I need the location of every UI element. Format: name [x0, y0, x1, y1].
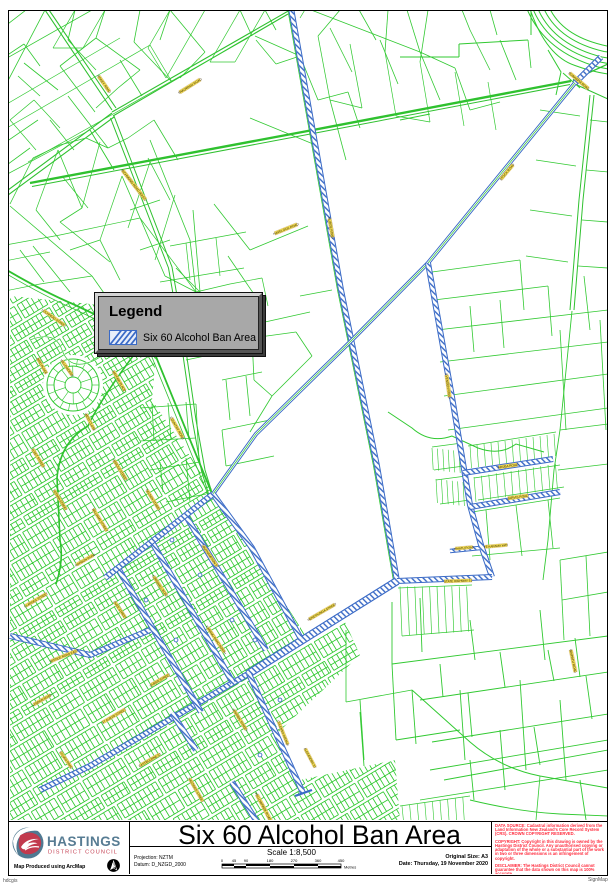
svg-text:Map Produced using ArcMap: Map Produced using ArcMap	[14, 864, 85, 870]
svg-text:DISTRICT COUNCIL: DISTRICT COUNCIL	[48, 850, 118, 856]
svg-text:N: N	[112, 864, 116, 870]
svg-text:360: 360	[315, 858, 322, 863]
svg-text:45: 45	[232, 858, 237, 863]
svg-text:HASTINGS: HASTINGS	[47, 834, 121, 849]
svg-text:180: 180	[267, 858, 274, 863]
svg-text:450: 450	[338, 858, 345, 863]
svg-text:0: 0	[221, 858, 224, 863]
svg-text:Metres: Metres	[344, 865, 356, 870]
svg-text:270: 270	[291, 858, 298, 863]
svg-text:90: 90	[244, 858, 249, 863]
